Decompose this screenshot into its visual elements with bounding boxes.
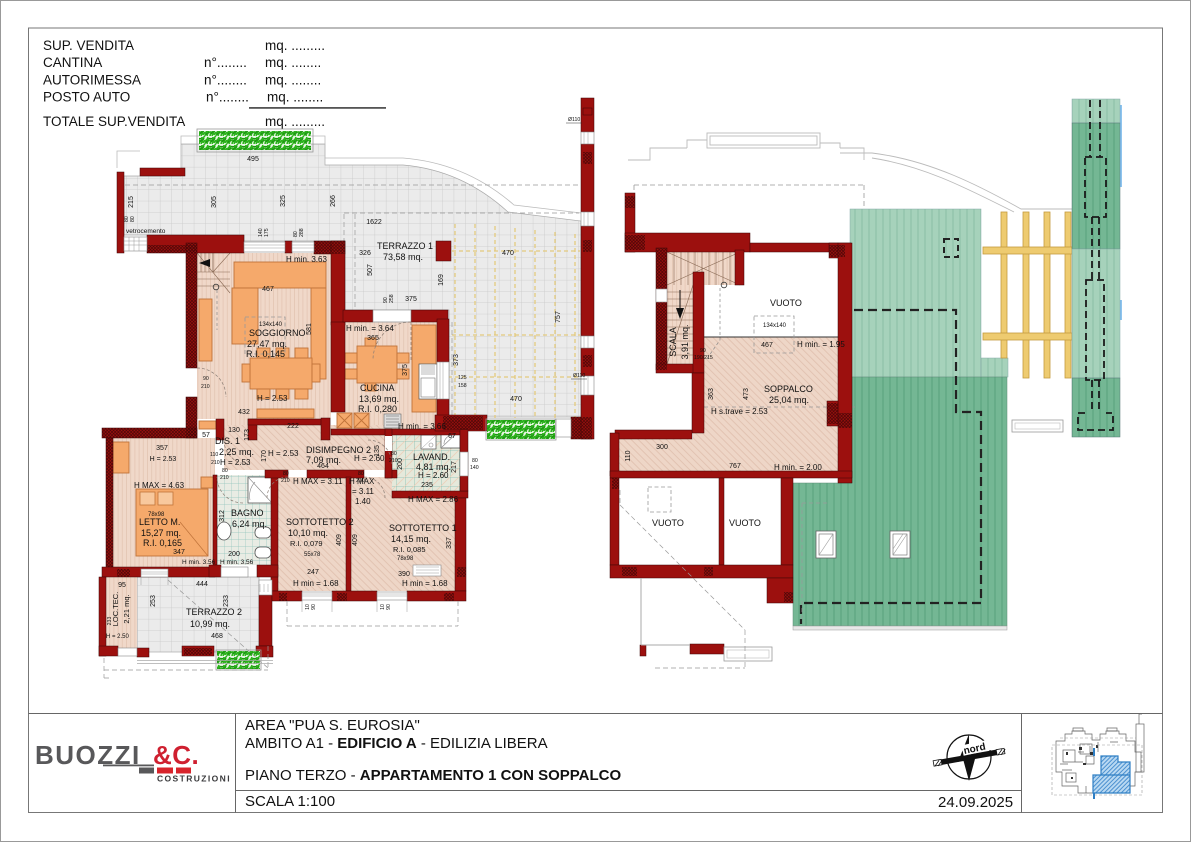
svg-text:357: 357 (156, 445, 168, 452)
svg-text:SUP. VENDITA: SUP. VENDITA (43, 38, 134, 53)
svg-text:AMBITO A1 - EDIFICIO A - EDILI: AMBITO A1 - EDIFICIO A - EDILIZIA LIBERA (245, 735, 548, 752)
svg-text:288: 288 (299, 228, 305, 237)
svg-text:80: 80 (130, 216, 136, 222)
svg-text:90: 90 (203, 376, 209, 382)
svg-text:SCALA 1:100: SCALA 1:100 (245, 793, 335, 810)
svg-text:10,99 mq.: 10,99 mq. (190, 619, 230, 629)
svg-text:390: 390 (398, 571, 410, 578)
svg-text:363: 363 (708, 388, 715, 400)
svg-text:H min. = 3.64: H min. = 3.64 (346, 324, 394, 333)
svg-text:27,47 mq.: 27,47 mq. (247, 339, 287, 349)
svg-text:158: 158 (458, 383, 467, 389)
svg-text:LAVAND.: LAVAND. (413, 452, 450, 462)
svg-text:H min. 3.56: H min. 3.56 (182, 559, 216, 566)
svg-text:R.I. 0,085: R.I. 0,085 (393, 545, 426, 554)
svg-text:90: 90 (700, 348, 706, 354)
svg-text:200: 200 (397, 458, 404, 470)
svg-text:467: 467 (262, 286, 274, 293)
svg-text:AREA "PUA S. EUROSIA": AREA "PUA S. EUROSIA" (245, 717, 420, 734)
svg-text:258: 258 (389, 294, 395, 303)
svg-text:14,15 mq.: 14,15 mq. (391, 534, 431, 544)
svg-text:SOTTOTETTO 2: SOTTOTETTO 2 (286, 517, 354, 527)
svg-text:80: 80 (391, 451, 397, 457)
svg-text:H = 2.53: H = 2.53 (257, 394, 288, 403)
svg-text:80: 80 (472, 458, 478, 464)
svg-text:1.40: 1.40 (355, 497, 371, 506)
svg-text:326: 326 (359, 250, 371, 257)
svg-text:190/215: 190/215 (694, 355, 713, 361)
svg-text:375: 375 (402, 364, 409, 376)
svg-text:130: 130 (228, 427, 240, 434)
svg-text:H = 2.60: H = 2.60 (418, 471, 449, 480)
svg-text:vetrocemento: vetrocemento (126, 228, 166, 235)
svg-text:305: 305 (211, 196, 218, 208)
svg-text:H min. 3.56: H min. 3.56 (220, 559, 254, 566)
svg-text:H min = 1.68: H min = 1.68 (293, 579, 339, 588)
svg-text:57: 57 (202, 432, 210, 439)
svg-text:SOPPALCO: SOPPALCO (764, 384, 813, 394)
svg-text:&C.: &C. (153, 740, 199, 770)
svg-text:Ø110: Ø110 (573, 373, 585, 379)
svg-text:Ø110: Ø110 (568, 117, 580, 123)
svg-text:2,25 mq.: 2,25 mq. (219, 447, 254, 457)
svg-text:6,24 mq.: 6,24 mq. (232, 519, 267, 529)
svg-text:R.I. 0,079: R.I. 0,079 (290, 539, 323, 548)
svg-text:222: 222 (287, 423, 299, 430)
svg-text:10,10 mq.: 10,10 mq. (288, 528, 328, 538)
svg-text:R.I. 0,165: R.I. 0,165 (143, 538, 182, 548)
svg-text:n°........: n°........ (206, 90, 249, 105)
svg-text:110: 110 (625, 450, 632, 461)
svg-text:467: 467 (761, 342, 773, 349)
svg-text:90: 90 (386, 604, 392, 610)
svg-text:DIS. 1: DIS. 1 (215, 436, 240, 446)
svg-text:H MAX = 4.63: H MAX = 4.63 (134, 481, 185, 490)
svg-text:H min. = 2.00: H min. = 2.00 (774, 463, 822, 472)
svg-text:SOGGIORNO: SOGGIORNO (249, 328, 306, 338)
svg-text:215: 215 (128, 196, 135, 208)
svg-text:7,09 mq.: 7,09 mq. (306, 455, 341, 465)
svg-text:80: 80 (283, 471, 289, 477)
svg-text:H min = 1.68: H min = 1.68 (402, 579, 448, 588)
svg-text:LETTO M.: LETTO M. (139, 517, 180, 527)
svg-text:78x98: 78x98 (148, 512, 165, 518)
svg-text:H = 2.53: H = 2.53 (150, 456, 177, 463)
svg-text:470: 470 (502, 250, 514, 257)
svg-text:H = 2.50: H = 2.50 (106, 634, 130, 640)
svg-text:210: 210 (389, 458, 398, 464)
svg-text:R.I. 0,145: R.I. 0,145 (246, 349, 285, 359)
svg-text:253: 253 (150, 595, 157, 607)
svg-text:= 3.11: = 3.11 (352, 487, 374, 496)
svg-text:mq. ........: mq. ........ (267, 90, 323, 105)
svg-text:TERRAZZO 2: TERRAZZO 2 (186, 607, 242, 617)
svg-text:767: 767 (729, 463, 741, 470)
svg-text:757: 757 (555, 311, 562, 323)
svg-text:LOC.TEC.: LOC.TEC. (111, 592, 120, 627)
svg-text:TOTALE SUP.VENDITA: TOTALE SUP.VENDITA (43, 114, 185, 129)
svg-text:POSTO AUTO: POSTO AUTO (43, 90, 130, 105)
svg-text:n°........: n°........ (204, 73, 247, 88)
svg-text:H = 2.53: H = 2.53 (268, 449, 299, 458)
svg-text:325: 325 (280, 195, 287, 207)
svg-text:444: 444 (196, 581, 208, 588)
svg-text:173: 173 (244, 429, 251, 441)
svg-text:H min. = 1.95: H min. = 1.95 (797, 340, 845, 349)
svg-text:H = 2.60: H = 2.60 (354, 454, 385, 463)
svg-text:169: 169 (438, 274, 445, 286)
svg-text:80: 80 (222, 468, 228, 474)
svg-text:312: 312 (219, 510, 226, 522)
svg-text:507: 507 (367, 264, 374, 276)
svg-text:CUCINA: CUCINA (360, 383, 395, 393)
svg-text:BAGNO: BAGNO (231, 508, 264, 518)
svg-text:SCALA: SCALA (668, 327, 678, 357)
svg-text:15,27 mq.: 15,27 mq. (141, 528, 181, 538)
svg-text:SOTTOTETTO 1: SOTTOTETTO 1 (389, 523, 457, 533)
svg-text:409: 409 (352, 534, 359, 546)
svg-text:247: 247 (307, 569, 319, 576)
svg-text:473: 473 (743, 388, 750, 400)
svg-text:375: 375 (405, 296, 417, 303)
svg-text:170: 170 (261, 450, 268, 462)
svg-text:VUOTO: VUOTO (652, 518, 684, 528)
svg-text:73,58 mq.: 73,58 mq. (383, 252, 423, 262)
svg-text:1622: 1622 (366, 219, 382, 226)
svg-text:337: 337 (446, 537, 453, 549)
svg-text:210: 210 (211, 460, 220, 466)
svg-text:134x140: 134x140 (763, 323, 787, 329)
svg-text:H s.trave = 2.53: H s.trave = 2.53 (711, 407, 768, 416)
svg-text:373: 373 (453, 354, 460, 366)
svg-text:233: 233 (223, 595, 230, 607)
svg-text:80: 80 (358, 471, 364, 477)
svg-text:217: 217 (451, 461, 458, 473)
svg-text:H min. = 3.66: H min. = 3.66 (398, 422, 446, 431)
svg-text:2,21 mq.: 2,21 mq. (122, 594, 131, 623)
svg-text:55x78: 55x78 (304, 552, 321, 558)
svg-text:AUTORIMESSA: AUTORIMESSA (43, 73, 141, 88)
svg-text:470: 470 (510, 396, 522, 403)
svg-text:24.09.2025: 24.09.2025 (938, 794, 1013, 811)
svg-text:CANTINA: CANTINA (43, 55, 102, 70)
svg-text:468: 468 (211, 633, 223, 640)
svg-text:210: 210 (220, 475, 229, 481)
svg-text:67: 67 (448, 433, 456, 440)
svg-text:432: 432 (238, 409, 250, 416)
svg-text:95: 95 (118, 582, 126, 589)
svg-text:200: 200 (228, 551, 240, 558)
svg-text:VUOTO: VUOTO (770, 298, 802, 308)
svg-text:300: 300 (656, 444, 668, 451)
svg-text:mq. .........: mq. ......... (265, 114, 325, 129)
svg-text:TERRAZZO 1: TERRAZZO 1 (377, 241, 433, 251)
svg-text:90: 90 (311, 604, 317, 610)
svg-text:347: 347 (173, 549, 185, 556)
svg-text:VUOTO: VUOTO (729, 518, 761, 528)
svg-text:mq. ........: mq. ........ (265, 55, 321, 70)
svg-text:13,69 mq.: 13,69 mq. (359, 394, 399, 404)
svg-text:H = 2.53: H = 2.53 (220, 458, 251, 467)
svg-text:140: 140 (470, 465, 479, 471)
svg-text:25,04 mq.: 25,04 mq. (769, 395, 809, 405)
svg-text:266: 266 (330, 195, 337, 207)
svg-text:134x140: 134x140 (259, 322, 283, 328)
svg-text:H MAX = 3.11: H MAX = 3.11 (293, 477, 343, 486)
svg-text:PIANO TERZO - APPARTAMENTO 1 C: PIANO TERZO - APPARTAMENTO 1 CON SOPPALC… (245, 767, 621, 784)
svg-text:365: 365 (367, 335, 379, 342)
svg-text:H MAX = 2.86: H MAX = 2.86 (408, 495, 459, 504)
svg-text:210: 210 (356, 478, 365, 484)
svg-text:COSTRUZIONI: COSTRUZIONI (157, 774, 231, 784)
svg-text:581: 581 (306, 323, 313, 335)
svg-text:mq. .........: mq. ......... (265, 38, 325, 53)
svg-text:110: 110 (210, 452, 218, 458)
svg-text:125: 125 (458, 375, 467, 381)
svg-text:210: 210 (281, 478, 290, 484)
svg-text:R.I. 0,280: R.I. 0,280 (358, 404, 397, 414)
svg-text:78x98: 78x98 (397, 556, 414, 562)
svg-text:175: 175 (264, 228, 270, 237)
svg-text:3,91 mq.: 3,91 mq. (680, 324, 690, 359)
svg-text:H min. 3.63: H min. 3.63 (286, 255, 327, 264)
svg-text:n°........: n°........ (204, 55, 247, 70)
svg-text:409: 409 (336, 534, 343, 546)
svg-text:495: 495 (247, 156, 259, 163)
svg-text:210: 210 (201, 384, 210, 390)
svg-text:mq. ........: mq. ........ (265, 73, 321, 88)
svg-text:235: 235 (421, 482, 433, 489)
